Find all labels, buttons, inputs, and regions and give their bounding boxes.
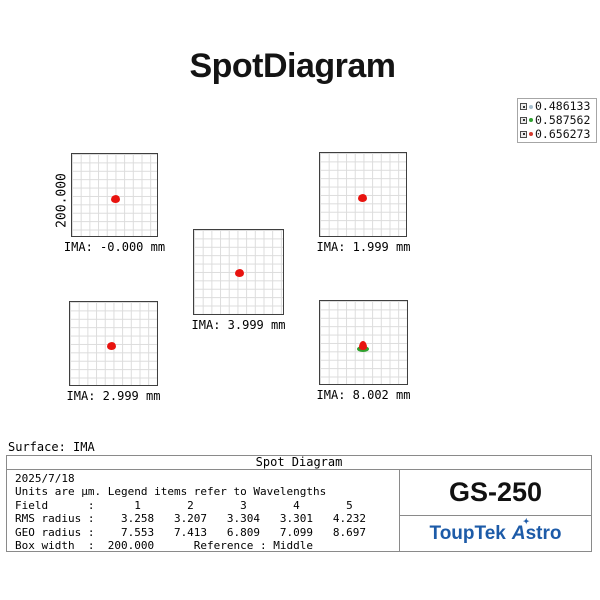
surface-label: Surface: IMA — [8, 440, 95, 454]
legend-marker-icon — [520, 103, 527, 110]
brand-logo: ToupTek A✦ stro — [400, 516, 591, 552]
box-width-row: Box width : 200.000 Reference : Middle — [15, 539, 399, 552]
table-data-cell: 2025/7/18 Units are µm. Legend items ref… — [7, 470, 399, 552]
wavelength-dot-icon — [529, 118, 533, 122]
spot-marker — [111, 195, 120, 203]
ima-label-3: IMA: 3.999 mm — [180, 318, 297, 332]
spot-marker — [235, 269, 244, 277]
date-row: 2025/7/18 — [15, 472, 399, 485]
legend-entry-2: 0.587562 — [520, 114, 594, 127]
units-row: Units are µm. Legend items refer to Wave… — [15, 485, 399, 498]
wavelength-value: 0.656273 — [535, 128, 590, 141]
spot-marker-red — [359, 341, 367, 350]
geo-radius-row: GEO radius : 7.553 7.413 6.809 7.099 8.6… — [15, 526, 399, 539]
table-body: 2025/7/18 Units are µm. Legend items ref… — [7, 470, 591, 552]
model-name: GS-250 — [400, 470, 591, 516]
report-table: Spot Diagram 2025/7/18 Units are µm. Leg… — [6, 455, 592, 552]
rms-radius-row: RMS radius : 3.258 3.207 3.304 3.301 4.2… — [15, 512, 399, 525]
brand-word-stro: stro — [526, 523, 562, 545]
ima-label-2: IMA: 1.999 mm — [305, 240, 422, 254]
field-row: Field : 1 2 3 4 5 — [15, 499, 399, 512]
brand-a-glyph: A — [512, 523, 526, 544]
legend-marker-icon — [520, 117, 527, 124]
spot-panel-3 — [193, 229, 284, 315]
spot-panel-4 — [69, 301, 158, 386]
spot-marker — [358, 194, 367, 202]
spot-marker — [107, 342, 116, 350]
wavelength-dot-icon — [529, 105, 533, 109]
ima-label-1: IMA: -0.000 mm — [56, 240, 173, 254]
legend-entry-3: 0.656273 — [520, 128, 594, 141]
spot-diagram-report: SpotDiagram 0.486133 0.587562 0.656273 2… — [0, 0, 600, 600]
star-icon: ✦ — [523, 518, 530, 526]
ima-label-5: IMA: 8.002 mm — [305, 388, 422, 402]
table-header: Spot Diagram — [7, 456, 591, 470]
legend-marker-icon — [520, 131, 527, 138]
branding-cell: GS-250 ToupTek A✦ stro — [399, 470, 591, 552]
ima-label-4: IMA: 2.999 mm — [55, 389, 172, 403]
wavelength-dot-icon — [529, 132, 533, 136]
spot-panel-5 — [319, 300, 408, 385]
brand-letter-a: A✦ — [512, 523, 526, 545]
page-title: SpotDiagram — [0, 47, 585, 86]
spot-panel-2 — [319, 152, 407, 237]
box-width-scale-label: 200.000 — [55, 167, 70, 235]
wavelength-legend: 0.486133 0.587562 0.656273 — [517, 98, 597, 143]
wavelength-value: 0.486133 — [535, 100, 590, 113]
spot-panel-1 — [71, 153, 158, 237]
brand-word-touptek: ToupTek — [430, 523, 506, 545]
legend-entry-1: 0.486133 — [520, 100, 594, 113]
wavelength-value: 0.587562 — [535, 114, 590, 127]
